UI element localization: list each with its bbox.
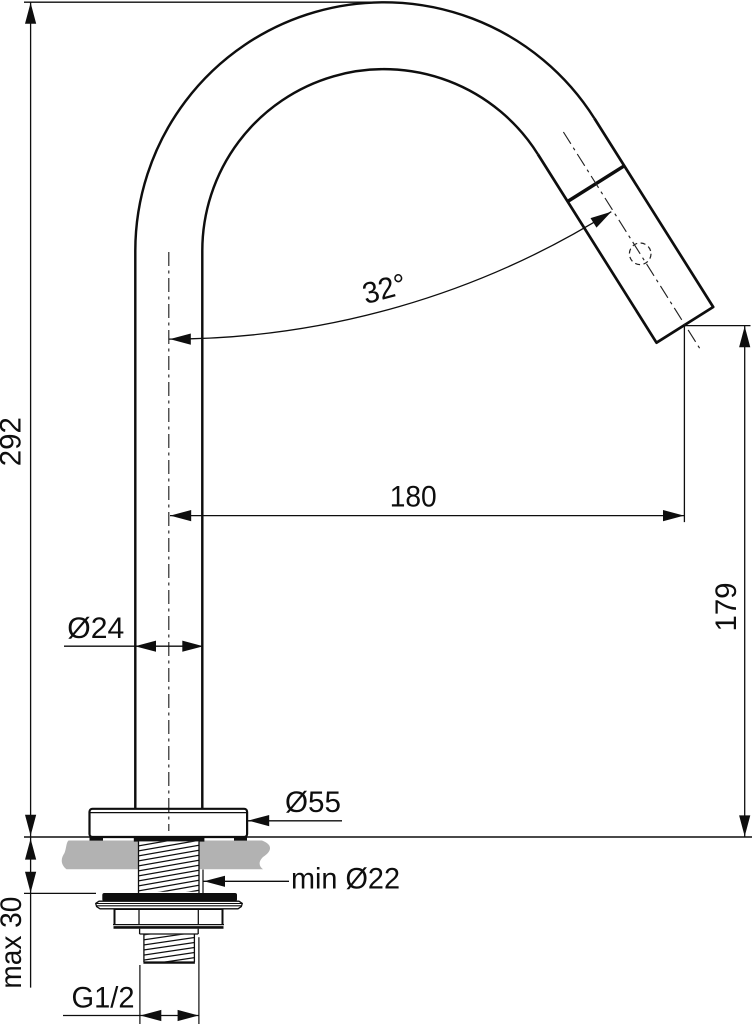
svg-text:min Ø22: min Ø22 (291, 863, 400, 896)
svg-text:Ø55: Ø55 (285, 786, 341, 819)
svg-text:180: 180 (390, 481, 437, 514)
svg-text:292: 292 (0, 417, 28, 466)
svg-text:179: 179 (710, 583, 743, 632)
svg-text:G1/2: G1/2 (72, 981, 135, 1014)
svg-text:Ø24: Ø24 (67, 612, 124, 645)
svg-text:max 30: max 30 (0, 897, 28, 989)
